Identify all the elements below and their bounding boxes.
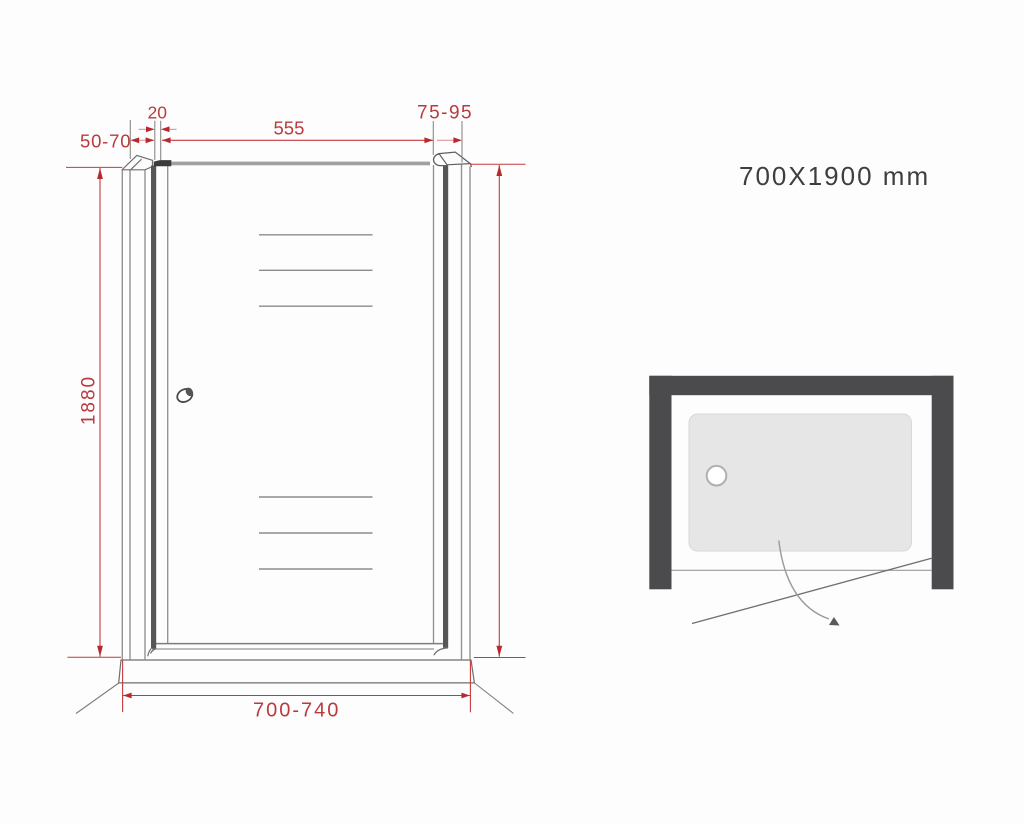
svg-text:75-95: 75-95 [417,103,473,124]
svg-text:700-740: 700-740 [253,700,340,722]
svg-text:700X1900 mm: 700X1900 mm [739,161,930,191]
svg-text:20: 20 [148,103,168,123]
svg-text:555: 555 [274,118,305,139]
svg-text:50-70: 50-70 [80,131,131,152]
svg-text:1880: 1880 [79,375,100,425]
